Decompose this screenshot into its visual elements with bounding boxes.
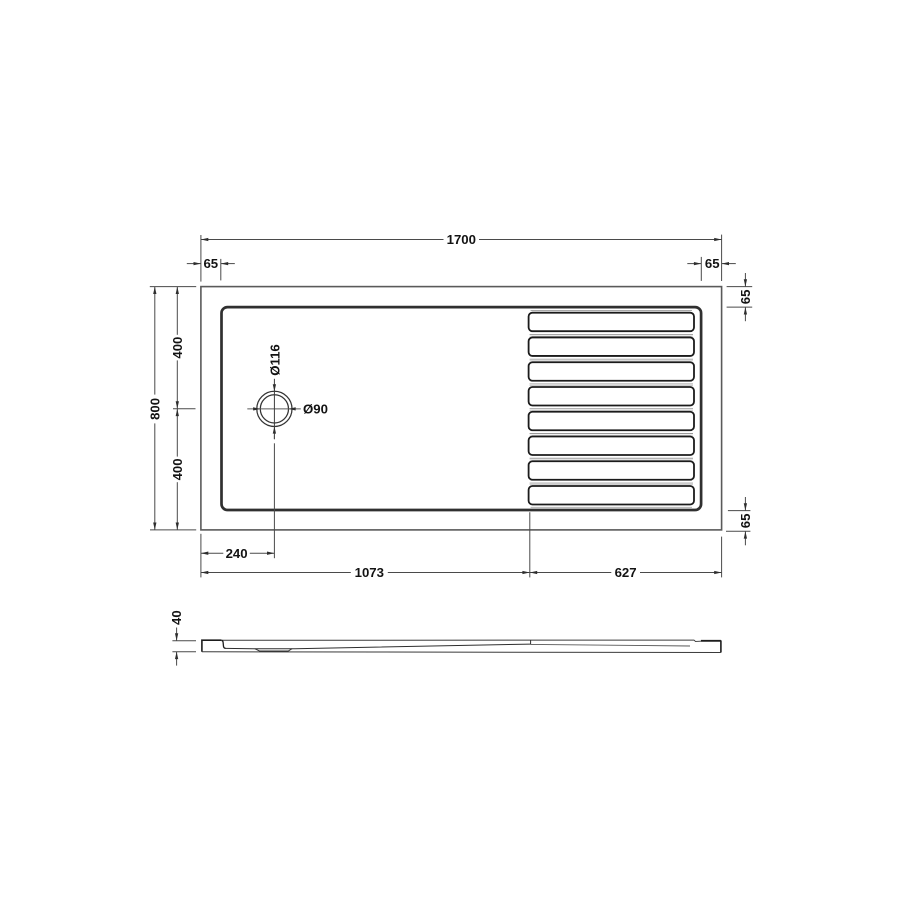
svg-text:400: 400 [170, 458, 185, 480]
svg-text:65: 65 [705, 256, 720, 271]
svg-text:Ø116: Ø116 [268, 344, 283, 376]
svg-text:Ø90: Ø90 [303, 402, 328, 417]
svg-text:40: 40 [169, 610, 184, 625]
svg-text:65: 65 [738, 514, 753, 529]
svg-text:1073: 1073 [355, 565, 384, 580]
svg-text:1700: 1700 [447, 232, 476, 247]
svg-text:240: 240 [226, 546, 248, 561]
svg-text:627: 627 [615, 565, 637, 580]
svg-text:800: 800 [147, 398, 162, 420]
svg-text:65: 65 [203, 256, 218, 271]
svg-text:400: 400 [170, 337, 185, 359]
svg-text:65: 65 [738, 290, 753, 305]
